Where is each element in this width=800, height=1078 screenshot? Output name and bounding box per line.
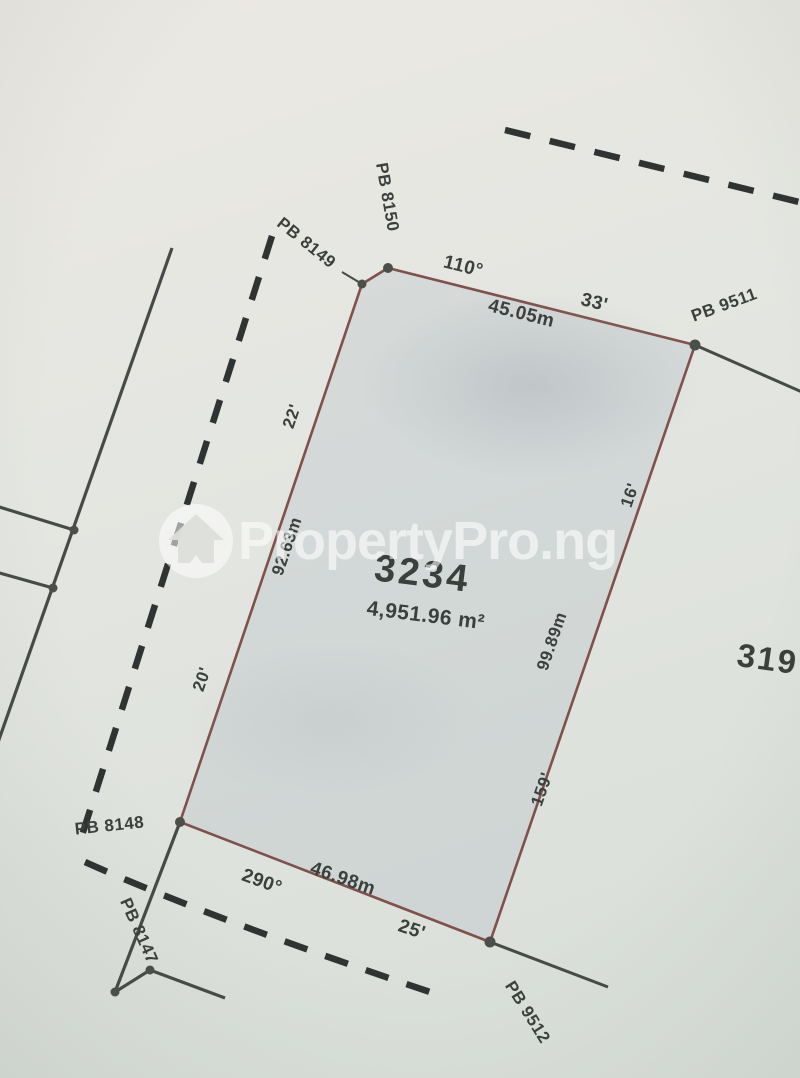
junction-node	[111, 988, 120, 997]
paper-shading	[180, 640, 480, 800]
beacon-node-pb8149	[358, 280, 367, 289]
survey-plan-photo: PB 8150 PB 8149 PB 9511 PB 8148 PB 8147 …	[0, 0, 800, 1078]
beacon-node-pb8148	[175, 817, 185, 827]
junction-node	[70, 526, 79, 535]
junction-node	[146, 966, 155, 975]
watermark-brand-text: PropertyPro.ng	[238, 511, 617, 571]
cadastral-survey-diagram: PB 8150 PB 8149 PB 9511 PB 8148 PB 8147 …	[0, 0, 800, 1078]
beacon-node-pb9511	[690, 340, 701, 351]
beacon-node-pb9512	[485, 937, 496, 948]
beacon-node-pb8150	[383, 263, 393, 273]
junction-node	[49, 584, 58, 593]
